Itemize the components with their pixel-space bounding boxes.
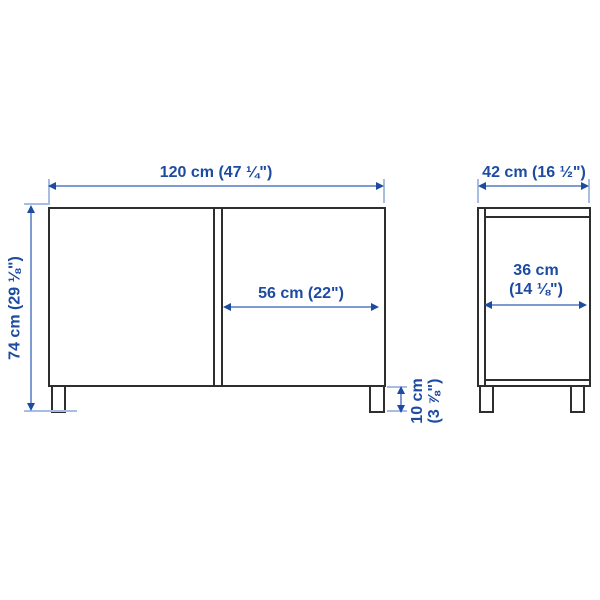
leg-height-label-line1: 10 cm <box>409 378 426 423</box>
dimension-line <box>490 304 581 306</box>
door-divider <box>213 209 223 385</box>
depth-dimension-label: 42 cm (16 ½") <box>482 163 586 182</box>
dimension-line <box>484 185 583 187</box>
dimension-diagram: 120 cm (47 ¼") 74 cm (29 ⅛") 56 cm (22") <box>0 0 600 600</box>
arrow-left-icon <box>484 301 492 309</box>
side-top-panel-line <box>486 216 589 218</box>
arrow-right-icon <box>376 182 384 190</box>
door-width-dimension-label: 56 cm (22") <box>258 284 344 303</box>
arrow-up-icon <box>27 205 35 213</box>
side-door-front-line <box>484 209 486 385</box>
dimension-line <box>30 212 32 404</box>
inner-depth-label-line2: (14 ⅛") <box>509 280 563 299</box>
arrow-right-icon <box>581 182 589 190</box>
front-leg-left <box>51 385 66 413</box>
arrow-down-icon <box>397 405 405 413</box>
dimension-line <box>229 306 373 308</box>
side-leg-right <box>570 385 585 413</box>
arrow-right-icon <box>579 301 587 309</box>
width-dimension-label: 120 cm (47 ¼") <box>160 163 273 182</box>
arrow-down-icon <box>27 403 35 411</box>
arrow-right-icon <box>371 303 379 311</box>
leg-height-label-line2: (3 ⅞") <box>426 378 443 423</box>
dimension-line <box>54 185 378 187</box>
front-leg-right <box>369 385 385 413</box>
arrow-up-icon <box>397 386 405 394</box>
arrow-left-icon <box>478 182 486 190</box>
arrow-left-icon <box>48 182 56 190</box>
inner-depth-label-line1: 36 cm <box>509 261 563 280</box>
arrow-left-icon <box>223 303 231 311</box>
side-leg-left <box>479 385 494 413</box>
inner-depth-dimension-label: 36 cm (14 ⅛") <box>509 261 563 299</box>
side-bottom-panel-line <box>486 379 589 381</box>
leg-height-dimension-label: 10 cm (3 ⅞") <box>409 378 443 423</box>
height-dimension-label: 74 cm (29 ⅛") <box>7 256 24 360</box>
